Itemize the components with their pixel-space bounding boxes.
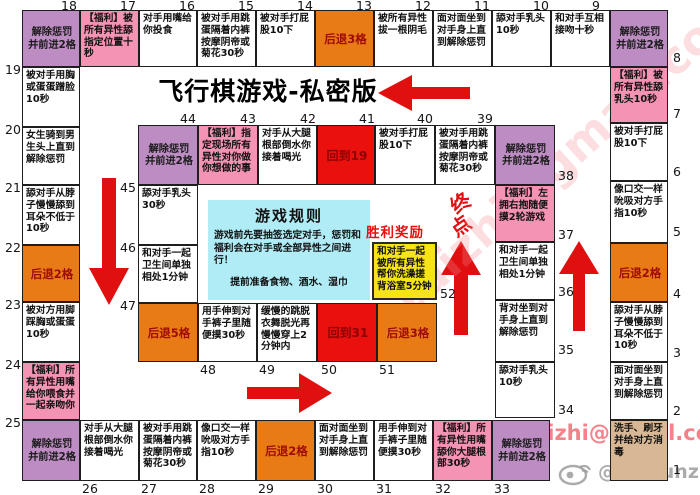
page-title: 飞行棋游戏-私密版 <box>152 72 384 108</box>
cell-number-11: 11 <box>474 0 490 13</box>
arrow-right-icon <box>247 371 333 415</box>
cell-number-50: 50 <box>321 364 337 377</box>
cell-number-4: 4 <box>673 288 681 301</box>
cell-number-29: 29 <box>258 483 274 495</box>
cell-number-42: 42 <box>300 113 316 126</box>
cell-number-40: 40 <box>417 113 433 126</box>
weibo-icon <box>556 459 594 487</box>
cell-number-24: 24 <box>5 359 21 372</box>
board-cell-16: 对手用嘴给你投食 <box>139 10 197 67</box>
cell-number-38: 38 <box>558 170 574 183</box>
cell-number-47: 47 <box>120 300 136 313</box>
cell-number-1: 1 <box>673 464 681 477</box>
cell-number-39: 39 <box>477 113 493 126</box>
cell-number-46: 46 <box>120 242 136 255</box>
board-cell-30: 面对面坐到对手身上直到解除惩罚 <box>315 420 374 481</box>
board-cell-17: 【福利】被所有异性舔指定位置十秒 <box>80 10 139 67</box>
board-cell-32: 【福利】所有异性用嘴舔你大腿根部30秒 <box>433 420 492 481</box>
cell-number-31: 31 <box>376 483 392 495</box>
board-cell-1: 洗手、刷牙并给对方消毒 <box>610 420 668 481</box>
board-cell-27: 被对手用跳蛋隔着内裤按摩阴帝或菊花30秒 <box>139 420 197 481</box>
rules-note: 提前准备食物、酒水、湿巾 <box>214 274 364 288</box>
cell-number-51: 51 <box>379 364 395 377</box>
board-cell-13: 后退3格 <box>315 10 374 67</box>
rules-box: 游戏规则 游戏前先要抽签选定对手，惩罚和福利会在对手或全部异性之间进行！ 提前准… <box>208 200 370 300</box>
cell-number-52: 52 <box>440 288 456 301</box>
board-cell-8: 解除惩罚 并前进2格 <box>610 10 668 67</box>
cell-number-6: 6 <box>673 166 681 179</box>
board-cell-20: 女生骑到男生头上直到解除惩罚 <box>22 127 80 185</box>
board-cell-50: 回到31 <box>317 303 377 362</box>
cell-number-3: 3 <box>673 347 681 360</box>
board-cell-5: 像口交一样吮吸对方手指10秒 <box>610 181 668 243</box>
board-cell-25: 解除惩罚 并前进2格 <box>22 420 80 481</box>
cell-number-32: 32 <box>435 483 451 495</box>
board-cell-29: 后退2格 <box>256 420 315 481</box>
board-cell-15: 被对手用跳蛋隔着内裤按摩阴帝或菊花30秒 <box>197 10 256 67</box>
board-cell-38: 解除惩罚 并前进2格 <box>495 125 555 185</box>
cell-number-19: 19 <box>5 64 21 77</box>
victory-reward-label: 胜利奖励 <box>366 221 424 241</box>
board-cell-52: 和对手一起被所有异性帮你洗澡搓背浴室5分钟 <box>372 242 437 300</box>
board-cell-44: 解除惩罚 并前进2格 <box>138 125 198 185</box>
board-cell-43: 【福利】指定现场所有异性对你做你想做的事 <box>198 125 258 185</box>
cell-number-37: 37 <box>558 229 574 242</box>
cell-number-12: 12 <box>415 0 431 13</box>
game-board: 飞行棋游戏-私密版 游戏规则 游戏前先要抽签选定对手，惩罚和福利会在对手或全部异… <box>0 0 700 495</box>
cell-number-34: 34 <box>558 404 574 417</box>
board-cell-10: 舔对手乳头10秒 <box>492 10 551 67</box>
cell-number-2: 2 <box>673 405 681 418</box>
board-cell-31: 用手伸到对手裤子里随便摸30秒 <box>374 420 433 481</box>
board-cell-42: 对手从大腿根部倒水你接着喝光 <box>258 125 317 185</box>
board-cell-26: 对手从大腿根部倒水你接着喝光 <box>80 420 139 481</box>
cell-number-35: 35 <box>558 344 574 357</box>
board-cell-33: 解除惩罚 并前进2格 <box>492 420 550 481</box>
board-cell-34: 舔对手乳头10秒 <box>495 362 555 418</box>
board-cell-35: 背对坐到对手身上直到解除惩罚 <box>495 300 555 362</box>
board-cell-22: 后退2格 <box>22 245 80 302</box>
arrow-left-icon <box>378 74 470 112</box>
cell-number-7: 7 <box>673 108 681 121</box>
board-cell-23: 被对方用脚踩胸或蛋蛋10秒 <box>22 302 80 362</box>
board-cell-46: 和对手一起卫生间单独相处1分钟 <box>138 245 198 303</box>
cell-number-43: 43 <box>240 113 256 126</box>
cell-number-25: 25 <box>5 417 21 430</box>
board-cell-6: 被对手打屁股10下 <box>610 123 668 181</box>
cell-number-8: 8 <box>673 52 681 65</box>
cell-number-45: 45 <box>120 182 136 195</box>
board-cell-4: 后退2格 <box>610 243 668 302</box>
board-cell-40: 被对手打屁股10下 <box>375 125 435 185</box>
board-cell-7: 【福利】被所有异性舔乳头10秒 <box>610 67 668 123</box>
board-cell-47: 后退5格 <box>138 303 198 362</box>
cell-number-20: 20 <box>5 124 21 137</box>
board-cell-14: 被对手打屁股10下 <box>256 10 315 67</box>
cell-number-14: 14 <box>297 0 313 13</box>
board-cell-21: 舔对手从脖子慢慢舔到耳朵不低于10秒 <box>22 185 80 245</box>
cell-number-9: 9 <box>592 0 600 13</box>
cell-number-30: 30 <box>317 483 333 495</box>
cell-number-23: 23 <box>5 299 21 312</box>
rules-title: 游戏规则 <box>214 205 364 226</box>
board-cell-49: 缓慢的跳脱衣舞脱光再慢慢穿上2分钟内 <box>257 303 317 362</box>
board-cell-3: 舔对手从脖子慢慢舔到耳朵不低于10秒 <box>610 302 668 362</box>
cell-number-22: 22 <box>5 242 21 255</box>
board-cell-2: 面对面坐到对手身上直到解除惩罚 <box>610 362 668 420</box>
board-cell-11: 面对面坐到对手身上直到解除惩罚 <box>433 10 492 67</box>
cell-number-49: 49 <box>259 364 275 377</box>
board-cell-24: 【福利】所有异性用嘴给你喂食并一起亲吻你 <box>22 362 80 420</box>
board-cell-19: 被对手用胸或蛋蛋蹭脸10秒 <box>22 67 80 127</box>
cell-number-18: 18 <box>61 0 77 13</box>
cell-number-26: 26 <box>82 483 98 495</box>
board-cell-39: 被对手用跳蛋隔着内裤按摩阴帝或菊花30秒 <box>435 125 495 185</box>
cell-number-41: 41 <box>359 113 375 126</box>
cell-number-44: 44 <box>180 113 196 126</box>
board-cell-48: 用手伸到对手裤子里随便摸30秒 <box>198 303 257 362</box>
board-cell-45: 舔对手乳头30秒 <box>138 185 198 245</box>
board-cell-18: 解除惩罚 并前进2格 <box>22 10 80 67</box>
board-cell-12: 被所有异性拔一根阴毛 <box>374 10 433 67</box>
cell-number-48: 48 <box>200 364 216 377</box>
cell-number-10: 10 <box>533 0 549 13</box>
cell-number-21: 21 <box>5 182 21 195</box>
board-cell-37: 【福利】左拥右抱随便摸2轮游戏 <box>495 185 555 242</box>
cell-number-28: 28 <box>199 483 215 495</box>
cell-number-17: 17 <box>120 0 136 13</box>
cell-number-27: 27 <box>141 483 157 495</box>
cell-number-16: 16 <box>179 0 195 13</box>
board-cell-41: 回到19 <box>317 125 375 185</box>
cell-number-13: 13 <box>356 0 372 13</box>
cell-number-5: 5 <box>673 226 681 239</box>
board-cell-51: 后退3格 <box>377 303 437 362</box>
cell-number-36: 36 <box>558 286 574 299</box>
rules-body: 游戏前先要抽签选定对手，惩罚和福利会在对手或全部异性之间进行！ <box>214 230 364 268</box>
board-cell-36: 和对手一起卫生间单独相处1分钟 <box>495 242 555 300</box>
board-cell-9: 和对手互相接吻十秒 <box>551 10 610 67</box>
board-cell-28: 像口交一样吮吸对方手指10秒 <box>197 420 256 481</box>
cell-number-33: 33 <box>494 483 510 495</box>
cell-number-15: 15 <box>238 0 254 13</box>
